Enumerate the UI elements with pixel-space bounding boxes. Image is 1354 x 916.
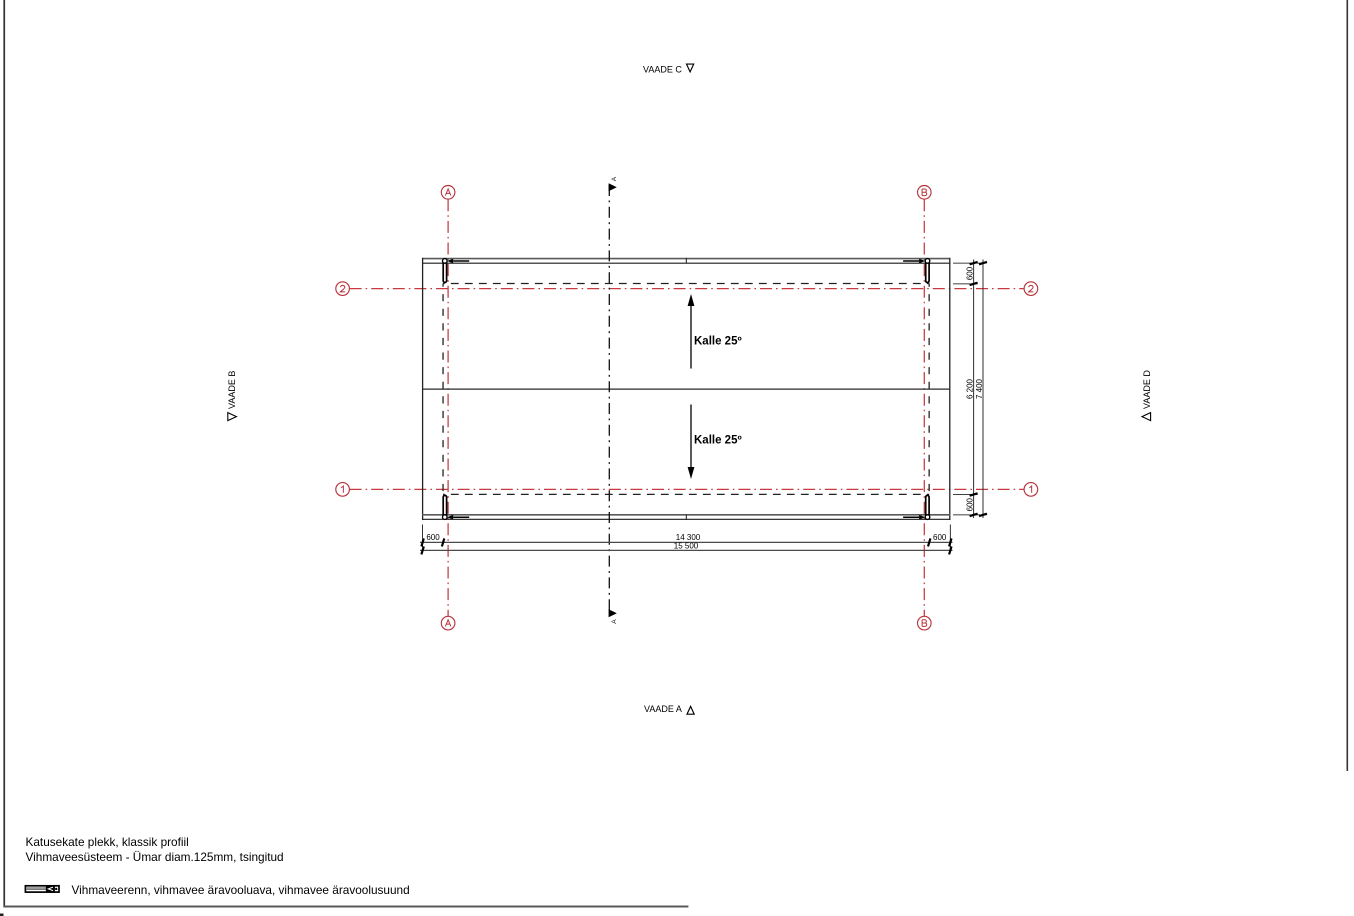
svg-text:VAADE B: VAADE B xyxy=(227,371,237,409)
svg-text:VAADE C: VAADE C xyxy=(643,65,682,75)
svg-text:Kalle 25º: Kalle 25º xyxy=(694,336,742,348)
svg-text:15 500: 15 500 xyxy=(674,542,699,551)
svg-text:A: A xyxy=(611,619,618,624)
svg-text:VAADE D: VAADE D xyxy=(1142,370,1152,409)
svg-text:600: 600 xyxy=(965,497,974,511)
svg-text:6 200: 6 200 xyxy=(965,378,974,399)
svg-text:Kalle 25º: Kalle 25º xyxy=(694,435,742,447)
svg-text:A: A xyxy=(611,176,618,181)
svg-text:Vihmaveesüsteem - Ümar diam.12: Vihmaveesüsteem - Ümar diam.125mm, tsing… xyxy=(26,850,284,864)
svg-text:7 400: 7 400 xyxy=(975,378,984,399)
svg-text:600: 600 xyxy=(965,266,974,280)
svg-text:Katusekate plekk, klassik prof: Katusekate plekk, klassik profiil xyxy=(26,835,189,849)
svg-text:Vihmaveerenn, vihmavee äravool: Vihmaveerenn, vihmavee äravooluava, vihm… xyxy=(72,883,410,897)
svg-text:600: 600 xyxy=(426,533,440,542)
svg-text:600: 600 xyxy=(933,533,947,542)
svg-text:14 300: 14 300 xyxy=(676,533,701,542)
svg-text:VAADE A: VAADE A xyxy=(644,704,682,714)
